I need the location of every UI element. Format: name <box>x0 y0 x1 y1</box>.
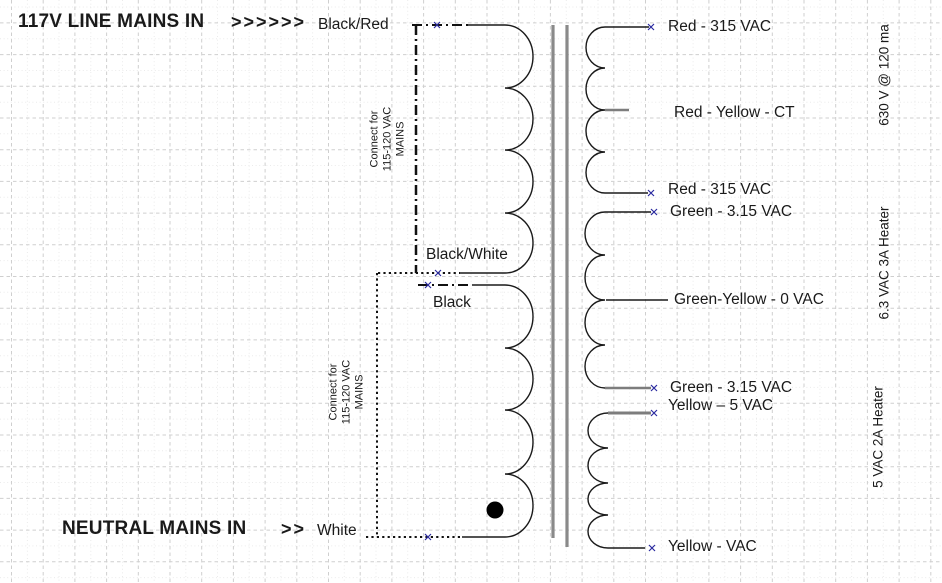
tap-label-black: Black <box>433 294 471 312</box>
secondary-heater-6v3-winding <box>585 212 668 388</box>
secondary-hv-coil <box>586 27 605 193</box>
secondary-hv-winding <box>586 27 649 193</box>
winding-rating-6v3-heater: 6.3 VAC 3A Heater <box>877 206 892 319</box>
heater-6v3-coil <box>585 212 605 388</box>
terminal-label-red-bottom: Red - 315 VAC <box>668 181 771 199</box>
terminal-label-yellow-bottom: Yellow - VAC <box>668 538 757 556</box>
line-mains-title: 117V LINE MAINS IN <box>18 11 204 33</box>
winding-rating-hv: 630 V @ 120 ma <box>877 24 892 126</box>
jumper-dotted <box>366 273 462 537</box>
terminal-label-red-top: Red - 315 VAC <box>668 18 771 36</box>
tap-label-black-white: Black/White <box>426 246 508 264</box>
transformer-wiring-diagram: 117V LINE MAINS IN >>>>>> Black/Red Conn… <box>0 0 942 583</box>
phase-dot <box>487 502 504 519</box>
jumper-note-upper: Connect for 115-120 VAC MAINS <box>369 107 408 171</box>
wire-label-black-red: Black/Red <box>318 16 389 34</box>
jumper-note-lower: Connect for 115-120 VAC MAINS <box>328 360 367 424</box>
terminal-label-green-yellow-ct: Green-Yellow - 0 VAC <box>674 291 824 309</box>
line-mains-chevrons-icon: >>>>>> <box>231 11 306 33</box>
terminal-label-green-top: Green - 3.15 VAC <box>670 203 792 221</box>
neutral-mains-title: NEUTRAL MAINS IN <box>62 518 246 540</box>
neutral-mains-chevrons-icon: >> <box>281 518 306 540</box>
terminal-label-yellow-5vac: Yellow – 5 VAC <box>668 397 773 415</box>
terminal-label-red-yellow-ct: Red - Yellow - CT <box>674 104 795 122</box>
winding-rating-5v-heater: 5 VAC 2A Heater <box>871 386 886 488</box>
terminal-label-green-bottom: Green - 3.15 VAC <box>670 379 792 397</box>
terminal-markers <box>425 22 657 551</box>
transformer-core <box>553 25 567 547</box>
heater-5v-coil <box>588 413 608 548</box>
secondary-heater-5v-winding <box>588 413 651 548</box>
wire-label-white: White <box>317 522 357 540</box>
